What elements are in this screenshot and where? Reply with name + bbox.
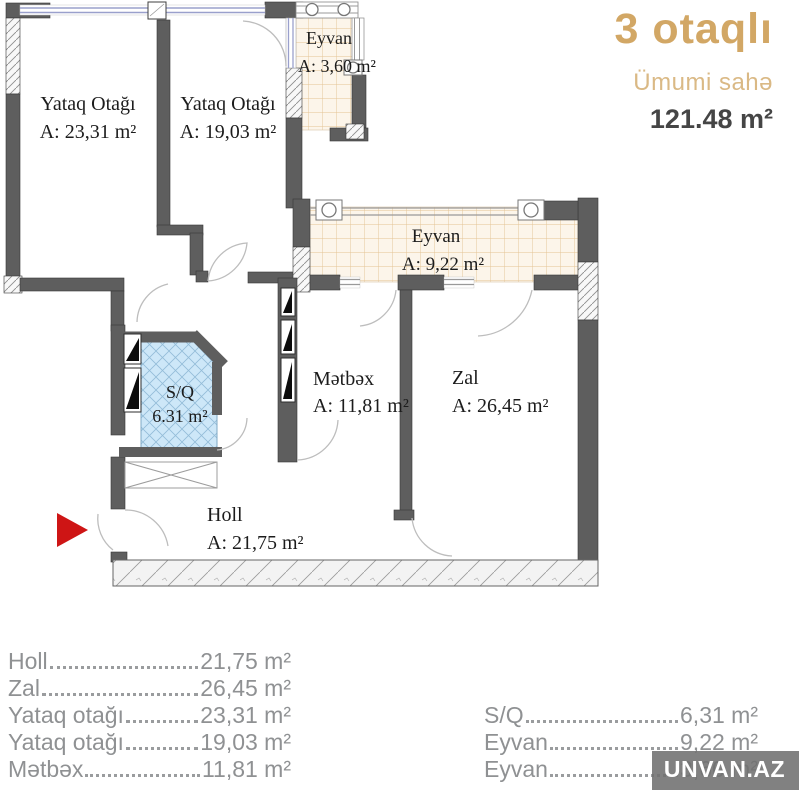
room-label-eyvan-top-area: A: 3,60 m²: [298, 56, 376, 76]
total-area-value: 121.48 m²: [614, 104, 773, 135]
dot-leader: [42, 693, 198, 696]
bottom-wall-hatch: [113, 560, 598, 586]
legend-value: 23,31 m²: [200, 702, 291, 729]
room-label-bedroom1-name: Yataq Otağı: [40, 93, 136, 115]
room-label-eyvan-mid-name: Eyvan: [412, 226, 461, 247]
room-label-zal-name: Zal: [452, 367, 479, 389]
legend-row: Yataq otağı19,03 m²: [8, 729, 291, 756]
room-label-eyvan-top-name: Eyvan: [306, 28, 352, 48]
legend-value: 19,03 m²: [200, 729, 291, 756]
legend-value: 6,31 m²: [680, 702, 758, 729]
room-label-bedroom1-area: A: 23,31 m²: [40, 121, 137, 143]
room-label-sq-area: 6.31 m²: [152, 406, 207, 426]
legend-row: Mətbəx11,81 m²: [8, 756, 291, 783]
dot-leader: [126, 747, 198, 750]
legend-label: Zal: [8, 675, 40, 702]
entry-arrow: [57, 513, 88, 547]
legend-label: Holl: [8, 648, 48, 675]
room-label-holl-name: Holl: [207, 504, 243, 526]
legend-row: S/Q6,31 m²: [484, 702, 758, 729]
listing-header: 3 otaqlı Ümumi sahə 121.48 m²: [614, 6, 773, 135]
room-label-sq-name: S/Q: [166, 382, 194, 402]
site-watermark: UNVAN.AZ: [652, 751, 799, 790]
room-label-zal-area: A: 26,45 m²: [452, 395, 549, 417]
room-label-metbex-area: A: 11,81 m²: [313, 395, 409, 417]
room-label-bedroom2-name: Yataq Otağı: [180, 93, 276, 115]
dot-leader: [126, 720, 198, 723]
legend-label: Yataq otağı: [8, 729, 124, 756]
legend-label: Eyvan: [484, 729, 548, 756]
dot-leader: [526, 720, 678, 723]
legend-label: Yataq otağı: [8, 702, 124, 729]
legend-row: Holl21,75 m²: [8, 648, 291, 675]
page-title: 3 otaqlı: [614, 6, 773, 53]
legend-label: Eyvan: [484, 756, 548, 783]
total-area-label: Ümumi sahə: [614, 69, 773, 97]
dot-leader: [85, 774, 200, 777]
legend-value: 11,81 m²: [202, 756, 291, 783]
legend-label: S/Q: [484, 702, 524, 729]
dot-leader: [550, 747, 678, 750]
legend-value: 26,45 m²: [200, 675, 291, 702]
legend-label: Mətbəx: [8, 756, 83, 783]
room-label-bedroom2-area: A: 19,03 m²: [180, 121, 277, 143]
closet: [125, 462, 217, 488]
area-legend-left: Holl21,75 m² Zal26,45 m² Yataq otağı23,3…: [8, 648, 291, 783]
dot-leader: [50, 666, 199, 669]
room-label-eyvan-mid-area: A: 9,22 m²: [402, 254, 485, 275]
walls: [4, 2, 598, 586]
room-label-metbex-name: Mətbəx: [313, 368, 374, 390]
room-label-holl-area: A: 21,75 m²: [207, 532, 304, 554]
floor-plan-page: Yataq Otağı A: 23,31 m² Yataq Otağı A: 1…: [0, 0, 799, 795]
legend-row: Yataq otağı23,31 m²: [8, 702, 291, 729]
legend-row: Zal26,45 m²: [8, 675, 291, 702]
floor-plan-drawing: Yataq Otağı A: 23,31 m² Yataq Otağı A: 1…: [0, 0, 610, 600]
legend-value: 21,75 m²: [200, 648, 291, 675]
